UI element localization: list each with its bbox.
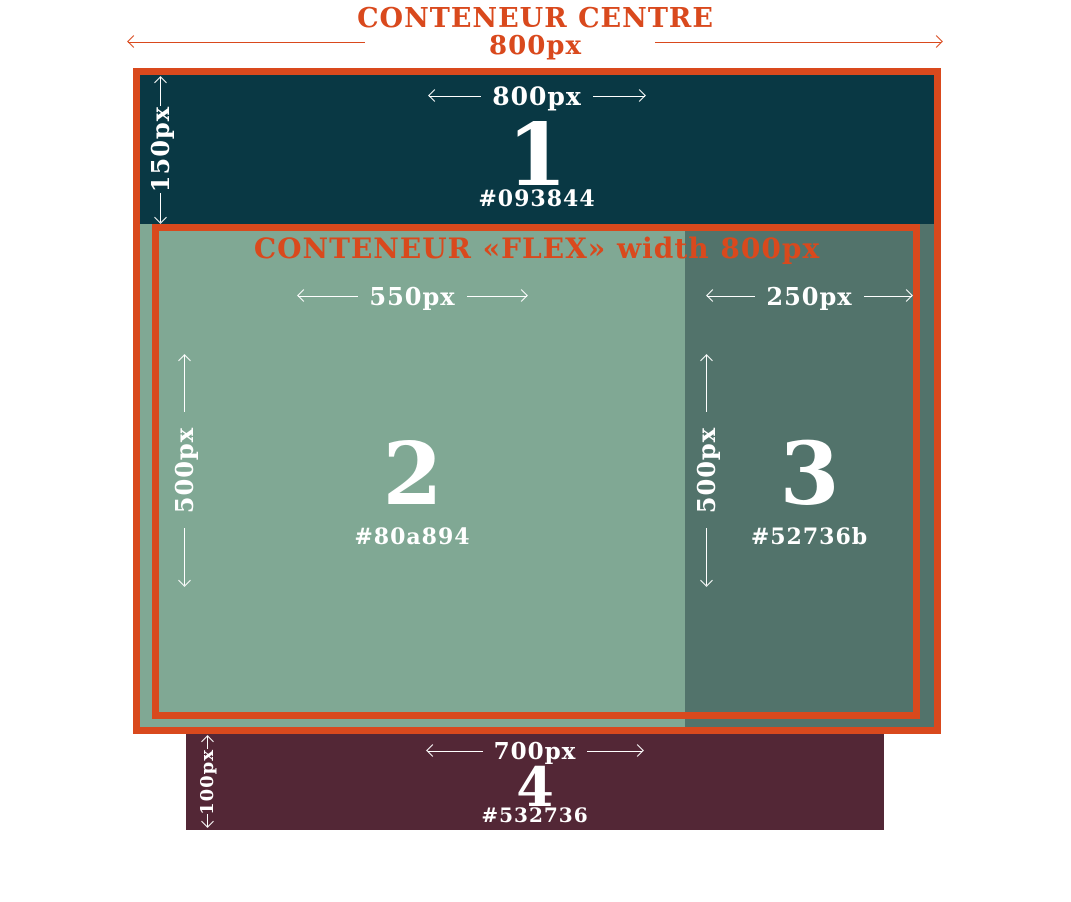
arrow-left-icon [428,751,483,752]
box4-height-label: 100px [197,749,218,815]
box2-width-dimension: 550px [140,282,685,311]
arrow-right-icon [587,751,642,752]
box1-height-label: 150px [146,106,175,192]
arrow-up-icon [184,355,185,412]
box3-hex-label: #52736b [685,524,934,550]
box2-width-label: 550px [369,282,455,311]
box-4: 700px 4 #532736 100px [186,734,884,830]
box1-hex-label: #093844 [140,186,934,212]
flex-container-title: CONTENEUR «FLEX» width 800px [140,232,934,265]
box4-height-dimension: 100px [194,736,220,827]
arrow-right-icon [593,96,645,97]
box-2: 550px 500px 2 #80a894 [140,224,685,727]
box3-width-label: 250px [766,282,852,311]
arrow-left-icon [707,296,755,297]
arrow-up-icon [207,736,208,749]
box3-number: 3 [685,432,934,518]
flex-container: 550px 500px 2 #80a894 250px [140,224,934,727]
arrow-left-icon [128,42,365,43]
box3-labels: 3 #52736b [685,432,934,550]
box4-hex-label: #532736 [186,803,884,827]
box3-width-dimension: 250px [685,282,934,311]
arrow-up-icon [706,355,707,412]
arrow-right-icon [467,296,527,297]
arrow-up-icon [160,77,161,106]
arrow-left-icon [298,296,358,297]
page-title: CONTENEUR CENTRE [0,3,1071,34]
box-1: 800px 1 #093844 150px [140,75,934,224]
box-3: 250px 500px 3 #52736b [685,224,934,727]
box2-labels: 2 #80a894 [140,432,685,550]
box1-height-dimension: 150px [145,77,175,222]
arrow-down-icon [160,193,161,222]
layout-diagram: CONTENEUR CENTRE 800px 800px 1 #093844 1… [0,0,1071,902]
outer-container: 800px 1 #093844 150px 550px [133,68,941,734]
box2-number: 2 [140,432,685,518]
box2-hex-label: #80a894 [140,524,685,550]
arrow-right-icon [864,296,912,297]
arrow-down-icon [207,814,208,827]
arrow-right-icon [655,42,941,43]
page-width-label: 800px [0,31,1071,61]
arrow-left-icon [429,96,481,97]
